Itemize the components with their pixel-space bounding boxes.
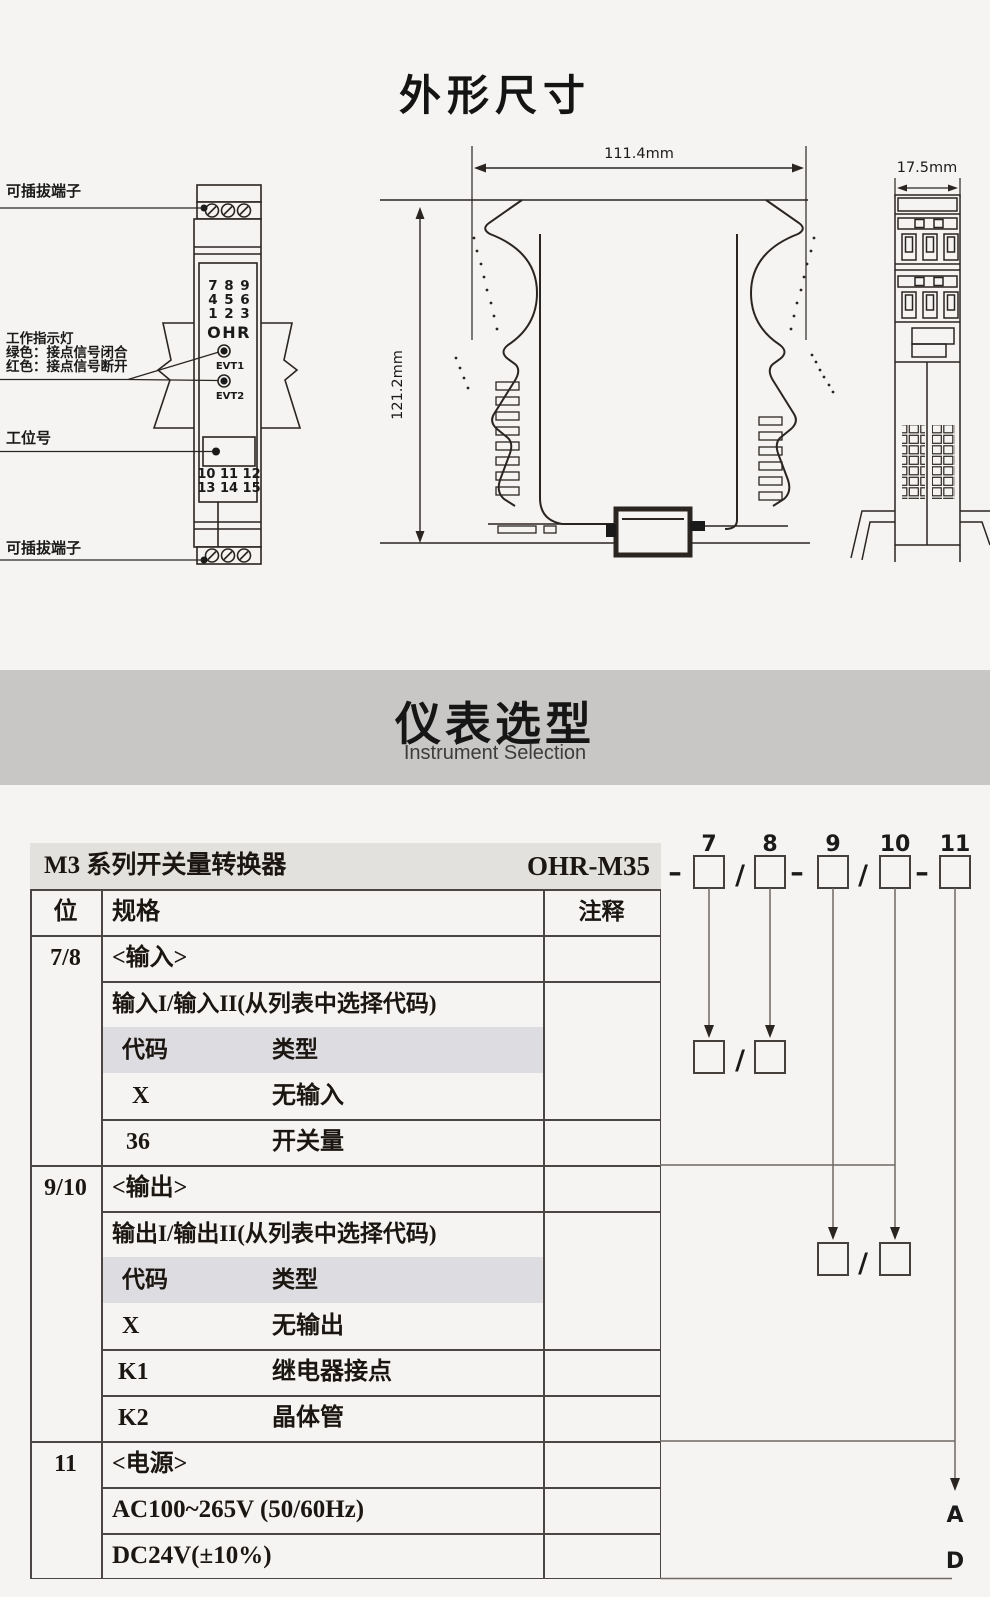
table-border: [101, 889, 103, 1579]
input-type-head: 类型: [272, 1027, 318, 1073]
width-dimension: 111.4mm: [604, 146, 674, 162]
digit-labels: 7 8 9 10 11: [701, 832, 970, 857]
page-title: 外形尺寸: [0, 62, 990, 123]
output-row-code: K2: [118, 1395, 149, 1441]
led2-label: EVT2: [216, 391, 244, 402]
callout-indicator-title: 工作指示灯: [6, 330, 74, 346]
svg-text:–: –: [790, 857, 804, 888]
output-pos: 9/10: [30, 1165, 101, 1211]
svg-text:/: /: [858, 1248, 868, 1279]
arrowhead: [828, 1227, 838, 1240]
arrowhead: [765, 1025, 775, 1038]
svg-text:–: –: [915, 857, 929, 888]
selection-table: M3 系列开关量转换器 OHR-M35 位 规格 注释 7/8 <输入> 输入I…: [30, 843, 661, 1579]
power-row-dc: DC24V(±10%): [112, 1533, 272, 1579]
terminal-number-grid: 7 8 9 4 5 6 1 2 3: [208, 278, 249, 322]
power-row-ac: AC100~265V (50/60Hz): [112, 1487, 364, 1533]
output-row-code: K1: [118, 1349, 149, 1395]
table-border: [543, 889, 545, 1579]
input-row-type: 开关量: [272, 1119, 344, 1165]
ordering-code-diagram: 7 8 9 10 11 – – – / / / /: [640, 795, 990, 1597]
table-border: [101, 1119, 661, 1121]
input-pos: 7/8: [30, 935, 101, 981]
input-code-head: 代码: [122, 1027, 168, 1073]
model-code: OHR-M35: [527, 843, 650, 889]
output-row-code: X: [122, 1303, 139, 1349]
output-subtitle: 输出I/输出II(从列表中选择代码): [112, 1211, 437, 1257]
col-head-spec: 规格: [112, 889, 160, 935]
depth-dimension: 17.5mm: [897, 160, 958, 176]
output-codehead-bg: [102, 1257, 543, 1303]
svg-text:1: 1: [208, 306, 217, 322]
output-title: <输出>: [112, 1165, 187, 1211]
output-code-head: 代码: [122, 1257, 168, 1303]
svg-text:13 14 15: 13 14 15: [197, 481, 260, 496]
cutoff-footnote-marks: [110, 1590, 164, 1597]
svg-text:–: –: [668, 857, 682, 888]
section-subtitle: Instrument Selection: [0, 742, 990, 765]
col-head-pos: 位: [30, 889, 101, 935]
svg-text:9: 9: [825, 832, 840, 857]
code-separators: – – – / / / /: [668, 857, 929, 1279]
input-row-type: 无输入: [272, 1073, 344, 1119]
front-view-drawing: [0, 185, 300, 564]
arrowhead: [950, 1478, 960, 1491]
output-type-head: 类型: [272, 1257, 318, 1303]
power-code-dc: D: [946, 1549, 964, 1574]
input-subtitle: 输入I/输入II(从列表中选择代码): [112, 981, 437, 1027]
power-title: <电源>: [112, 1441, 187, 1487]
end-view-drawing: [851, 178, 990, 562]
svg-text:/: /: [735, 860, 745, 891]
dimension-drawings: 可插拔端子 工作指示灯 绿色：接点信号闭合 红色：接点信号断开 工位号 可插拔端…: [0, 130, 990, 602]
callout-station: 工位号: [6, 429, 51, 447]
svg-text:10 11 12: 10 11 12: [197, 467, 260, 482]
arrowhead: [890, 1227, 900, 1240]
section-band: 仪表选型 Instrument Selection: [0, 670, 990, 785]
input-title: <输入>: [112, 935, 187, 981]
output-row-type: 晶体管: [272, 1395, 344, 1441]
svg-text:2: 2: [224, 306, 233, 322]
datasheet-page: 外形尺寸: [0, 0, 990, 1597]
svg-text:7: 7: [701, 832, 716, 857]
table-border: [101, 1395, 661, 1397]
svg-text:11: 11: [940, 832, 971, 857]
callout-top-terminal: 可插拔端子: [6, 182, 81, 200]
side-view-drawing: [380, 146, 834, 555]
svg-text:10: 10: [880, 832, 911, 857]
arrowhead: [704, 1025, 714, 1038]
output-row-type: 继电器接点: [272, 1349, 392, 1395]
bottom-number-grid: 10 11 12 13 14 15: [197, 467, 260, 496]
output-row-type: 无输出: [272, 1303, 344, 1349]
callout-indicator-green: 绿色：接点信号闭合: [6, 344, 128, 360]
svg-text:8: 8: [762, 832, 777, 857]
svg-text:/: /: [735, 1045, 745, 1076]
power-code-ac: A: [946, 1503, 963, 1528]
led1-label: EVT1: [216, 361, 244, 372]
input-row-code: 36: [126, 1119, 150, 1165]
power-pos: 11: [30, 1441, 101, 1487]
height-dimension: 121.2mm: [390, 350, 406, 420]
svg-text:3: 3: [240, 306, 249, 322]
callout-bottom-terminal: 可插拔端子: [6, 539, 81, 557]
input-row-code: X: [132, 1073, 149, 1119]
product-name: M3 系列开关量转换器: [44, 843, 286, 889]
callout-indicator-red: 红色：接点信号断开: [6, 358, 128, 374]
svg-text:/: /: [858, 860, 868, 891]
dotted-guides: [455, 237, 835, 394]
input-codehead-bg: [102, 1027, 543, 1073]
connector-lines: [660, 888, 960, 1579]
brand-logo: OHR: [207, 323, 251, 342]
